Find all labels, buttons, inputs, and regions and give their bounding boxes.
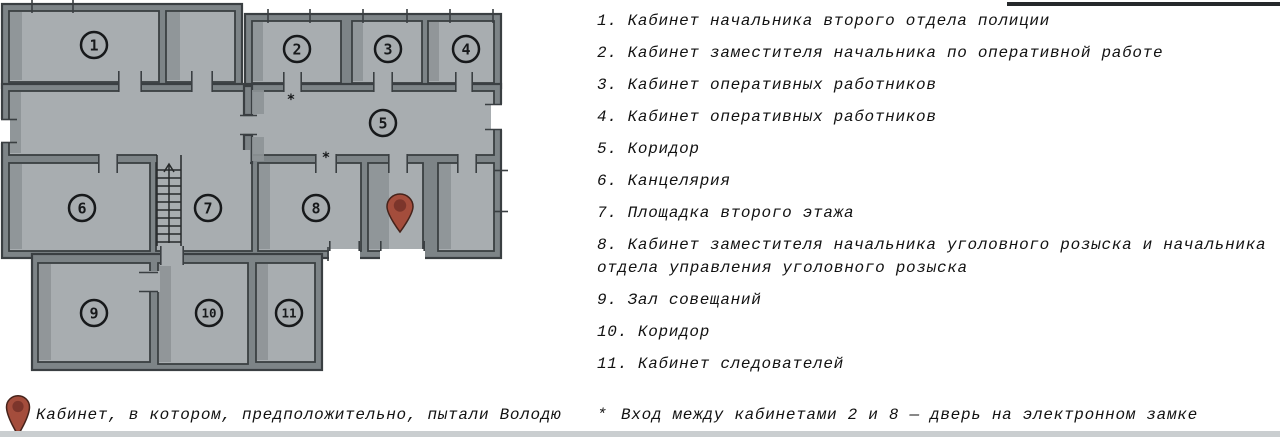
bottom-line bbox=[0, 431, 1280, 437]
door-note: *Вход между кабинетами 2 и 8 — дверь на … bbox=[597, 404, 1198, 427]
legend-item-8: 8.Кабинет заместителя начальника уголовн… bbox=[597, 234, 1280, 280]
door-note-text: Вход между кабинетами 2 и 8 — дверь на э… bbox=[621, 406, 1198, 424]
room-legend: 1.Кабинет начальника второго отдела поли… bbox=[597, 10, 1280, 385]
svg-text:9: 9 bbox=[89, 305, 98, 323]
svg-text:5: 5 bbox=[378, 115, 387, 133]
svg-text:8: 8 bbox=[311, 200, 320, 218]
svg-text:7: 7 bbox=[203, 200, 212, 218]
svg-text:1: 1 bbox=[89, 37, 98, 55]
room-1 bbox=[9, 11, 159, 82]
svg-text:3: 3 bbox=[383, 41, 392, 59]
legend-item-4: 4.Кабинет оперативных работников bbox=[597, 106, 1280, 129]
legend-item-2: 2.Кабинет заместителя начальника по опер… bbox=[597, 42, 1280, 65]
legend-item-5: 5.Коридор bbox=[597, 138, 1280, 161]
page: 1 2 3 4 5 6 7 8 9 10 11 * * 1.Каби bbox=[0, 0, 1280, 437]
svg-text:2: 2 bbox=[292, 41, 301, 59]
legend-item-9: 9.Зал совещаний bbox=[597, 289, 1280, 312]
door-asterisk-bottom: * bbox=[322, 150, 330, 166]
top-right-line bbox=[1007, 2, 1280, 6]
door-note-asterisk: * bbox=[597, 404, 621, 427]
pin-caption: Кабинет, в котором, предположительно, пы… bbox=[36, 404, 561, 427]
legend-item-10: 10.Коридор bbox=[597, 321, 1280, 344]
legend-item-3: 3.Кабинет оперативных работников bbox=[597, 74, 1280, 97]
floor-plan: 1 2 3 4 5 6 7 8 9 10 11 * * bbox=[0, 0, 512, 390]
floor-plan-drawing: 1 2 3 4 5 6 7 8 9 10 11 * * bbox=[0, 0, 512, 390]
legend-item-7: 7.Площадка второго этажа bbox=[597, 202, 1280, 225]
svg-text:10: 10 bbox=[201, 306, 216, 321]
door-asterisk-top: * bbox=[287, 92, 295, 108]
legend-item-11: 11.Кабинет следователей bbox=[597, 353, 1280, 376]
legend-item-1: 1.Кабинет начальника второго отдела поли… bbox=[597, 10, 1280, 33]
room-8 bbox=[258, 163, 361, 251]
legend-item-6: 6.Канцелярия bbox=[597, 170, 1280, 193]
svg-text:6: 6 bbox=[77, 200, 86, 218]
svg-text:11: 11 bbox=[281, 306, 296, 321]
svg-text:4: 4 bbox=[461, 41, 470, 59]
